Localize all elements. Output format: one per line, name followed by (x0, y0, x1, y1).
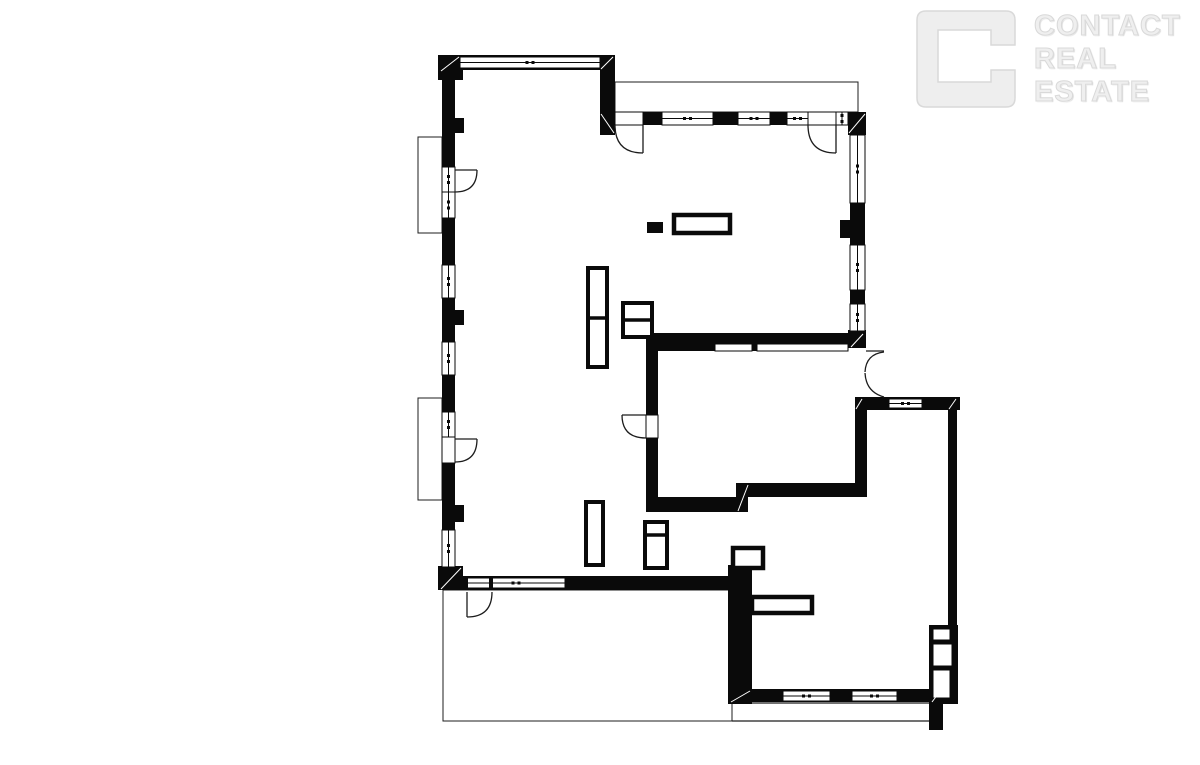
walls-layer (438, 55, 960, 730)
solid-fixtures-layer (464, 222, 663, 590)
furniture-layer (586, 215, 812, 613)
door-swing-arcs-layer (455, 125, 884, 617)
windows-layer (442, 57, 922, 701)
corner-seams-layer (441, 57, 956, 702)
logo-line-3: ESTATE (1034, 76, 1181, 109)
logo-c-square-icon (916, 10, 1016, 108)
logo-line-2: REAL (1034, 43, 1181, 76)
floor-plan-drawing (0, 0, 1200, 760)
logo-wordmark: CONTACT REAL ESTATE (1034, 10, 1181, 109)
logo-line-1: CONTACT (1034, 10, 1181, 43)
terrace-balcony-outline-layer (418, 82, 858, 721)
floor-plan-container (0, 0, 1200, 760)
watermark-logo: CONTACT REAL ESTATE (916, 10, 1181, 109)
